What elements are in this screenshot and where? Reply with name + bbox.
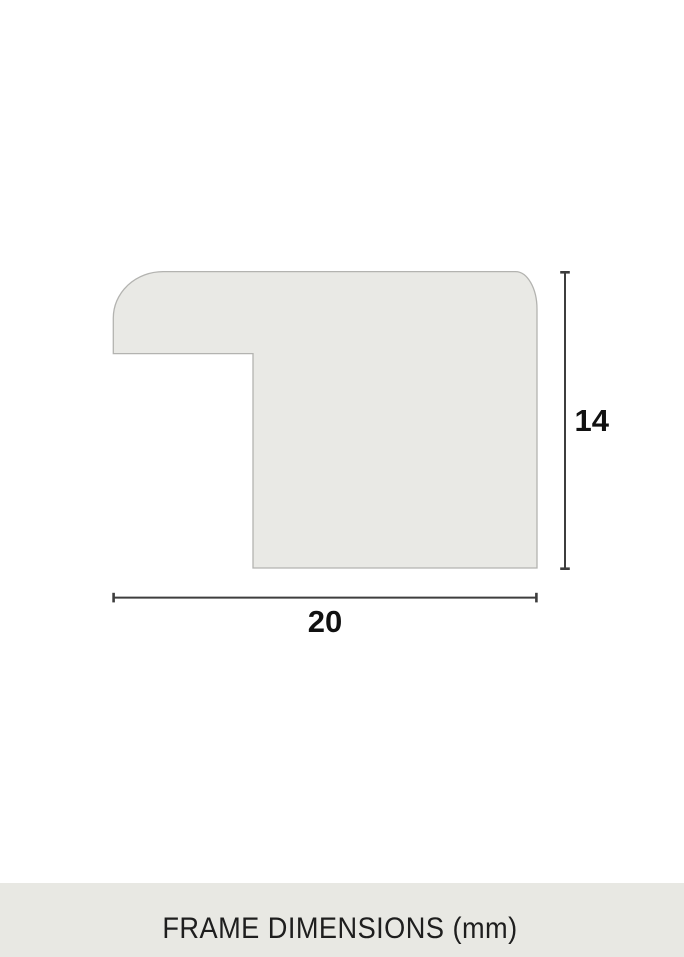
svg-text:14: 14 xyxy=(575,403,610,438)
svg-text:20: 20 xyxy=(308,604,342,639)
